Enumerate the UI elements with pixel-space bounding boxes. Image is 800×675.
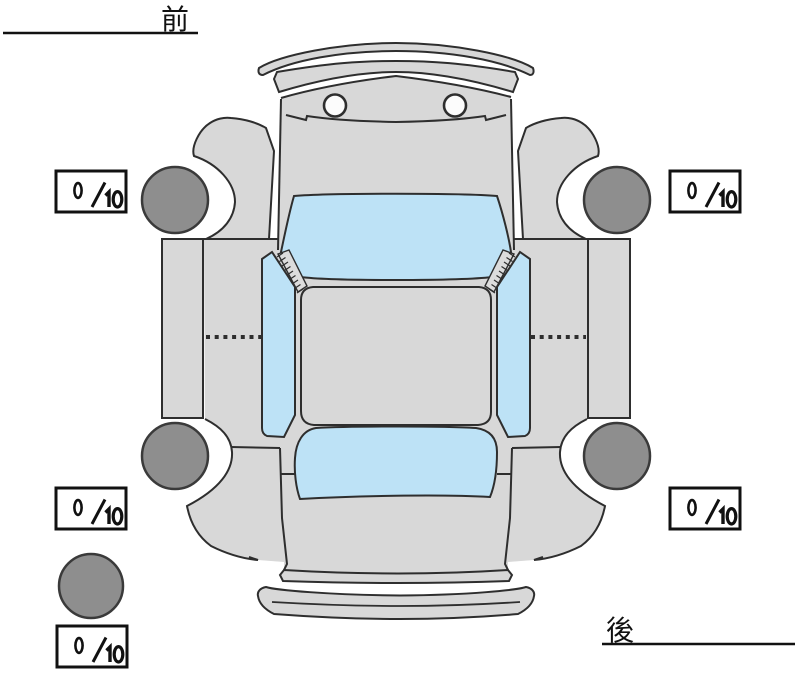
svg-text:後: 後 — [606, 615, 634, 646]
svg-text:前: 前 — [161, 4, 189, 35]
